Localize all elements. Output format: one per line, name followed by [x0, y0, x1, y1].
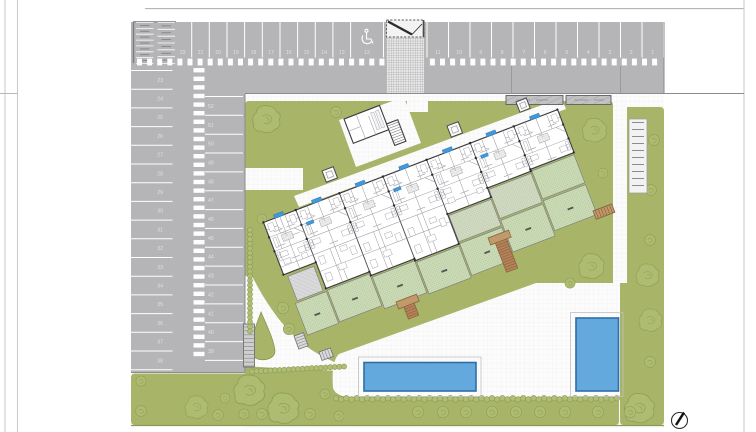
svg-text:25: 25 [157, 115, 163, 121]
svg-text:21: 21 [198, 50, 204, 56]
svg-text:8: 8 [501, 50, 504, 56]
svg-text:18: 18 [251, 50, 257, 56]
svg-text:35: 35 [157, 302, 163, 308]
svg-text:2: 2 [630, 50, 633, 56]
svg-text:29: 29 [157, 190, 163, 196]
svg-text:44: 44 [208, 255, 214, 261]
svg-text:28: 28 [157, 171, 163, 177]
svg-text:39: 39 [208, 349, 214, 355]
svg-text:37: 37 [157, 340, 163, 346]
svg-text:15: 15 [304, 50, 310, 56]
svg-text:33: 33 [157, 265, 163, 271]
svg-text:48: 48 [208, 179, 214, 185]
svg-text:42: 42 [208, 292, 214, 298]
svg-text:13: 13 [339, 50, 345, 56]
svg-text:1: 1 [651, 50, 654, 56]
svg-text:9: 9 [479, 50, 482, 56]
svg-text:23: 23 [157, 78, 163, 84]
svg-text:22: 22 [180, 50, 186, 56]
svg-text:16: 16 [286, 50, 292, 56]
svg-text:31: 31 [157, 227, 163, 233]
svg-text:7: 7 [522, 50, 525, 56]
svg-text:30: 30 [157, 209, 163, 215]
svg-text:43: 43 [208, 274, 214, 280]
svg-text:50: 50 [208, 142, 214, 148]
svg-text:41: 41 [208, 311, 214, 317]
svg-text:49: 49 [208, 161, 214, 167]
svg-text:34: 34 [157, 284, 163, 290]
svg-text:4: 4 [587, 50, 590, 56]
svg-text:3: 3 [608, 50, 611, 56]
svg-text:5: 5 [565, 50, 568, 56]
svg-text:27: 27 [157, 153, 163, 159]
svg-text:14: 14 [321, 50, 327, 56]
svg-text:17: 17 [268, 50, 274, 56]
svg-text:12: 12 [364, 50, 370, 56]
svg-text:20: 20 [215, 50, 221, 56]
svg-text:19: 19 [233, 50, 239, 56]
svg-text:47: 47 [208, 198, 214, 204]
svg-text:52: 52 [208, 104, 214, 110]
svg-text:26: 26 [157, 134, 163, 140]
svg-text:40: 40 [208, 330, 214, 336]
svg-text:45: 45 [208, 236, 214, 242]
svg-text:24: 24 [157, 97, 163, 103]
svg-text:6: 6 [544, 50, 547, 56]
svg-text:51: 51 [208, 123, 214, 129]
svg-text:32: 32 [157, 246, 163, 252]
svg-text:38: 38 [157, 358, 163, 364]
svg-text:11: 11 [435, 50, 440, 56]
svg-text:46: 46 [208, 217, 214, 223]
svg-text:36: 36 [157, 321, 163, 327]
svg-text:10: 10 [456, 50, 462, 56]
